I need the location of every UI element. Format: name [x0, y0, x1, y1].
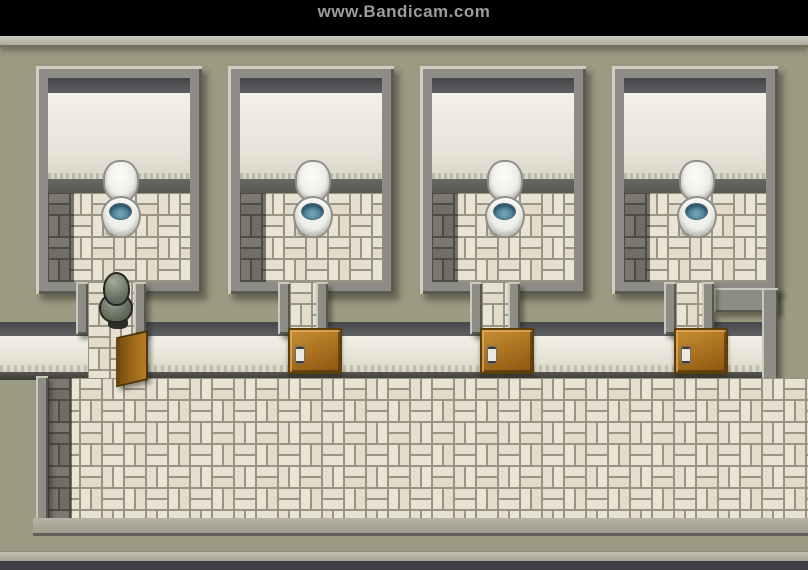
hallway-floor — [36, 378, 808, 518]
stall-4-floor-dark-column — [624, 193, 650, 282]
toilet-3-water — [493, 203, 516, 220]
stall-2-doorjamb-right — [316, 282, 328, 334]
stall-2-doorjamb-left — [278, 282, 290, 334]
stall-1-wall-shadow — [48, 78, 190, 93]
stall-1-floor-dark-column — [48, 193, 74, 282]
stall-1-doorjamb-left — [76, 282, 88, 334]
player-character[interactable] — [98, 272, 136, 332]
toilet-3-bowl[interactable] — [485, 196, 525, 238]
stall-2-floor-dark-column — [240, 193, 266, 282]
stall-4 — [612, 66, 778, 294]
stall-3-doorjamb-right — [508, 282, 520, 334]
stall-2 — [228, 66, 394, 294]
toilet-1-bowl[interactable] — [101, 196, 141, 238]
stall-3-door-closed[interactable] — [480, 328, 534, 374]
bottom-dark-band — [0, 561, 808, 570]
stall-3-doorway-tiles — [482, 282, 508, 330]
right-wall-vertical — [762, 288, 778, 380]
stall-4-door-closed[interactable] — [674, 328, 728, 374]
bottom-ledge — [33, 518, 808, 536]
toilet-1-water — [109, 203, 132, 220]
top-wall-ridge — [0, 36, 808, 47]
door-handle-icon — [295, 346, 305, 364]
stall-3 — [420, 66, 586, 294]
hallway-floor-dark-column — [48, 378, 72, 518]
hallway-left-border — [36, 376, 48, 524]
stall-1 — [36, 66, 202, 294]
stall-2-doorway-tiles — [290, 282, 316, 330]
door-handle-icon — [681, 346, 691, 364]
toilet-4-bowl[interactable] — [677, 196, 717, 238]
stall-3-doorjamb-left — [470, 282, 482, 334]
stall-4-doorway-tiles — [676, 282, 702, 330]
bandicam-watermark-bar: www.Bandicam.com — [0, 0, 808, 36]
stall-4-doorjamb-right — [702, 282, 714, 334]
stall-4-doorjamb-left — [664, 282, 676, 334]
stall-3-wall-shadow — [432, 78, 574, 93]
player-hood — [103, 272, 130, 306]
stall-4-wall-shadow — [624, 78, 766, 93]
toilet-2-bowl[interactable] — [293, 196, 333, 238]
stall-2-wall-shadow — [240, 78, 382, 93]
toilet-4-water — [685, 203, 708, 220]
stall-1-door-open[interactable] — [116, 330, 148, 387]
toilet-2-water — [301, 203, 324, 220]
stall-3-floor-dark-column — [432, 193, 458, 282]
game-screen: www.Bandicam.com — [0, 0, 808, 570]
stall-2-door-closed[interactable] — [288, 328, 342, 374]
watermark-text: www.Bandicam.com — [0, 0, 808, 22]
door-handle-icon — [487, 346, 497, 364]
